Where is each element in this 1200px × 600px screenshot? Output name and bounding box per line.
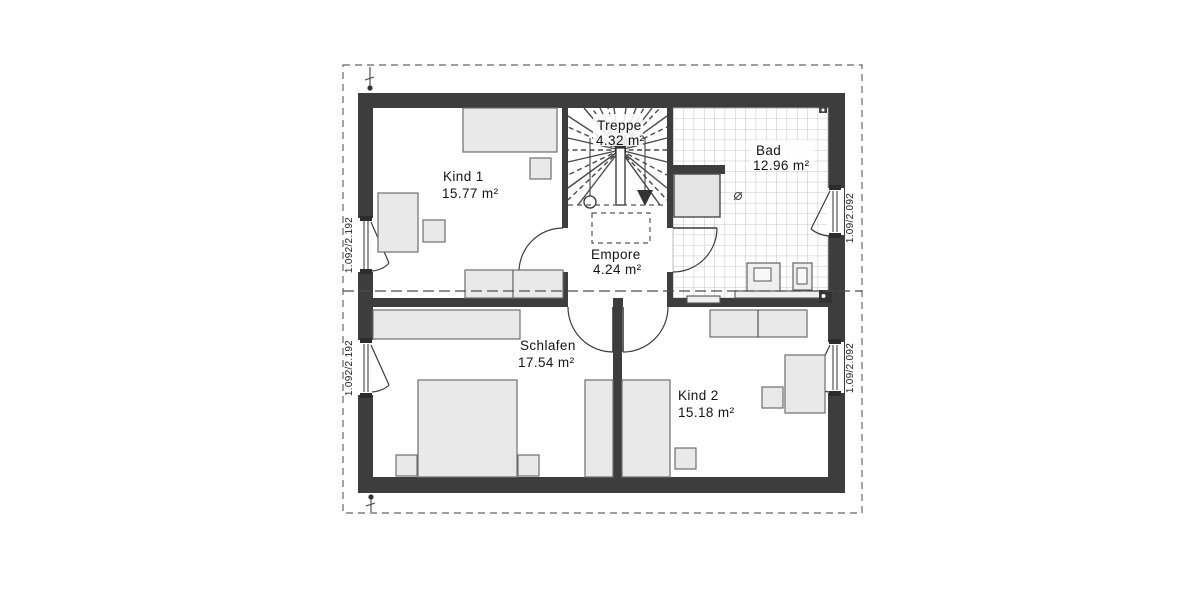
room-name-schlafen: Schlafen (520, 338, 576, 353)
floor-plan-canvas: Kind 1 15.77 m² Treppe 4.32 m² Bad 12.96… (0, 0, 1200, 600)
desk (378, 193, 418, 252)
room-name-kind2: Kind 2 (678, 388, 719, 403)
room-name-bad: Bad (756, 143, 781, 158)
bed (622, 380, 670, 477)
wardrobe (463, 108, 557, 152)
room-area-schlafen: 17.54 m² (518, 355, 575, 370)
duct-block (819, 290, 832, 303)
room-area-kind1: 15.77 m² (442, 186, 499, 201)
vent-icon (819, 107, 827, 113)
dresser (373, 310, 520, 339)
sofa-left (465, 270, 513, 298)
vanity-counter (735, 291, 822, 298)
window-size-right-kind2: 1.09/2.092 (845, 343, 856, 393)
nightstand-right (518, 455, 539, 476)
nightstand-left (396, 455, 417, 476)
toilet (747, 263, 780, 293)
window-size-left-schlafen: 1.092/2.192 (344, 340, 355, 396)
room-name-empore: Empore (591, 247, 641, 262)
floor-plan-drawing: Kind 1 15.77 m² Treppe 4.32 m² Bad 12.96… (0, 0, 1200, 600)
room-name-kind1: Kind 1 (443, 169, 484, 184)
stair-start-circle (584, 196, 596, 208)
room-area-bad: 12.96 m² (753, 158, 810, 173)
bidet (793, 263, 812, 290)
downpipe-symbol-bottom (366, 494, 375, 512)
chair (423, 220, 445, 242)
room-area-empore: 4.24 m² (593, 262, 642, 277)
bath-stub-wall (672, 165, 725, 174)
nightstand (675, 448, 696, 469)
room-name-treppe: Treppe (597, 118, 642, 133)
downpipe-symbol-top (365, 67, 374, 91)
stair-spine (616, 148, 625, 205)
double-bed (418, 380, 517, 477)
side-table (530, 158, 551, 179)
window-size-left-kind1: 1.092/2.192 (344, 217, 355, 273)
sofa-right (513, 270, 563, 298)
desk (785, 355, 825, 413)
shower (674, 174, 720, 217)
chair (762, 387, 783, 408)
window-size-right-bad: 1.09/2.092 (845, 193, 856, 243)
radiator (687, 296, 720, 303)
room-area-treppe: 4.32 m² (596, 133, 645, 148)
room-area-kind2: 15.18 m² (678, 405, 735, 420)
wardrobe-strip (585, 380, 613, 477)
